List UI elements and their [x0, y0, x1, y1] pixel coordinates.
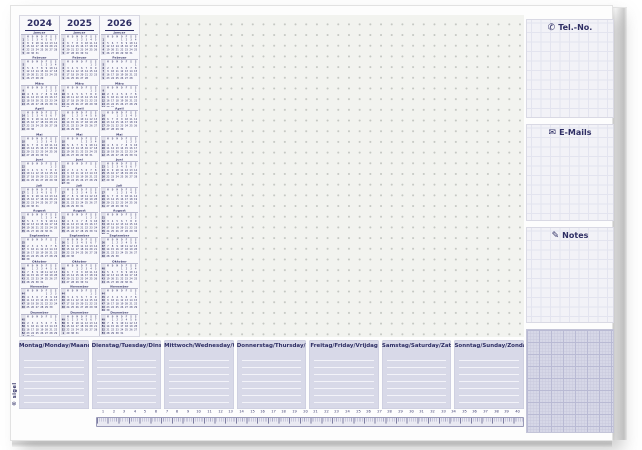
notes-panel: ✎ Notes — [526, 227, 614, 323]
mini-month-grid: MDMDFSS911023456781191011121314151216171… — [101, 86, 138, 107]
mini-month-inner: FebruarMDMDFSS51263456789710111213141516… — [61, 56, 98, 80]
mini-month-grid: MDMDFSS141234515678910111216131415161718… — [101, 111, 138, 131]
mini-month-inner: FebruarMDMDFSS51623456787910111213141581… — [101, 56, 138, 80]
ruler-number: 33 — [441, 410, 445, 413]
phone-icon: ✆ — [548, 23, 556, 33]
mini-month-grid: MDMDFSS401234564178910111213421415161718… — [21, 264, 58, 284]
mini-month: JuliMDMDFSS27123452867891011122913141516… — [101, 184, 138, 209]
ruler-number: 1 — [101, 410, 105, 413]
mini-month-inner: OktoberMDMDFSS40123441567891011421213141… — [101, 260, 138, 284]
day-cell: 31 — [93, 229, 98, 232]
year-label: 2024 — [25, 17, 54, 31]
ruler-number: 40 — [515, 410, 519, 413]
mini-month-grid: MDMDFSS141234561578910111213161415161718… — [61, 111, 98, 131]
planner-day-header: Sonntag/Sunday/Zondag — [454, 340, 524, 352]
mini-month: NovemberMDMDFSS4412453456789461011121314… — [61, 285, 98, 310]
ruler: 1234567891011121314151617181920212223242… — [96, 410, 524, 427]
day-cell — [93, 331, 98, 334]
planner-day-column: Donnerstag/Thursday/Donderdag — [237, 340, 307, 409]
mini-month: JuniMDMDFSS22123234567824910111213141525… — [61, 158, 98, 183]
mini-month-inner: JanuarMDMDFSS112345672891011121314315161… — [21, 31, 58, 55]
ruler-number: 18 — [282, 410, 286, 413]
day-cell — [133, 331, 138, 334]
mini-month-grid: MDMDFSS271234562878910111213291415161718… — [61, 187, 98, 207]
planner-day-header: Samstag/Saturday/Zaterdag — [382, 340, 452, 352]
mini-month-grid: MDMDFSS112345267891011123131415161718194… — [61, 35, 98, 55]
mini-month-grid: MDMDFSS361234567378910111213143815161718… — [61, 238, 98, 258]
mini-month-grid: MDMDFSS361234563778910111213381415161718… — [101, 238, 138, 258]
mini-month-grid: MDMDFSS441452345678469101112131415471617… — [101, 289, 138, 310]
mini-month-grid: MDMDFSS311234325678910113312131415161718… — [21, 213, 58, 233]
ruler-tick-strip — [96, 417, 524, 427]
mini-month-inner: JuliMDMDFSS27123452867891011122913141516… — [101, 184, 138, 208]
mini-month: MaiMDMDFSS181231945678910201112131415161… — [101, 133, 138, 158]
mini-month: SeptemberMDMDFSS361234567378910111213143… — [61, 234, 98, 259]
planner-day-header: Freitag/Friday/Vrijdag — [309, 340, 379, 352]
year-column: 2024JanuarMDMDFSS11234567289101112131431… — [20, 16, 59, 336]
writing-lines — [97, 354, 157, 406]
mini-month: AugustMDMDFSS311234325678910113312131415… — [21, 209, 58, 234]
mini-month: SeptemberMDMDFSS351362345678379101112131… — [21, 234, 58, 259]
mini-month: JanuarMDMDFSS112345672891011121314315161… — [21, 31, 58, 56]
ruler-number: 2 — [112, 410, 116, 413]
day-cell: 30 — [93, 306, 98, 309]
notes-panel-header: ✎ Notes — [527, 228, 613, 241]
mini-month-inner: MaiMDMDFSS181234195678910112012131415161… — [61, 133, 98, 157]
day-cell: 30 — [53, 179, 58, 182]
email-panel-header: ✉ E-Mails — [527, 125, 613, 138]
ruler-number: 5 — [144, 410, 148, 413]
mini-month-name: Juli — [21, 184, 58, 188]
ruler-number: 7 — [165, 410, 169, 413]
mini-month-grid: MDMDFSS441234545678910461112131415161747… — [21, 289, 58, 309]
desk-pad: 2024JanuarMDMDFSS11234567289101112131431… — [10, 5, 613, 441]
mini-month: AugustMDMDFSS311233245678910331112131415… — [61, 209, 98, 234]
mini-month-inner: MaiMDMDFSS181231945678910201112131415161… — [101, 133, 138, 157]
mini-month-grid: MDMDFSS912310456789101111121314151617121… — [21, 86, 58, 106]
mini-month-grid: MDMDFSS481492345678509101112131415511617… — [21, 315, 58, 336]
mini-month-grid: MDMDFSS516234567879101112131415816171819… — [101, 60, 138, 80]
ruler-number: 22 — [324, 410, 328, 413]
mini-month-inner: MärzMDMDFSS91210345678911101112131415161… — [61, 82, 98, 107]
envelope-icon: ✉ — [549, 128, 557, 138]
day-cell — [93, 204, 98, 207]
brand-logo: © sigel — [12, 382, 18, 406]
year-column: 2025JanuarMDMDFSS11234526789101112313141… — [59, 16, 99, 336]
ruler-number: 39 — [504, 410, 508, 413]
planner-day-column: Samstag/Saturday/Zaterdag — [382, 340, 452, 409]
ruler-number: 24 — [345, 410, 349, 413]
mini-month-inner: OktoberMDMDFSS40123456417891011121342141… — [21, 260, 58, 284]
ruler-number: 27 — [377, 410, 381, 413]
mini-month-grid: MDMDFSS512634567897101112131415168171819… — [61, 60, 98, 80]
mini-month-inner: JuliMDMDFSS27123456728891011121314291516… — [21, 184, 58, 208]
mini-month-grid: MDMDFSS271234528678910111229131415161718… — [101, 187, 138, 207]
mini-month: MärzMDMDFSS91210345678911101112131415161… — [61, 82, 98, 107]
mini-month-inner: NovemberMDMDFSS4412345456789104611121314… — [21, 285, 58, 309]
mini-month: JuniMDMDFSS23123456724891011121314251516… — [101, 158, 138, 183]
ruler-number: 26 — [366, 410, 370, 413]
day-cell — [93, 77, 98, 80]
pen-icon: ✎ — [552, 231, 560, 241]
mini-month-grid: MDMDFSS181231945678910201112131415161721… — [101, 137, 138, 157]
day-cell — [133, 51, 138, 54]
mini-month-grid: MDMDFSS401234541678910111242131415161718… — [61, 264, 98, 284]
mini-month-grid: MDMDFSS141234567158910111213141615161718… — [21, 111, 58, 131]
day-cell — [133, 255, 138, 258]
mini-month-grid: MDMDFSS221232345678249101112131415251617… — [61, 162, 98, 183]
ruler-numbers: 1234567891011121314151617181920212223242… — [96, 410, 524, 416]
ruler-number: 35 — [462, 410, 466, 413]
ruler-number: 3 — [122, 410, 126, 413]
mini-month-inner: AprilMDMDFSS1412345615789101112131614151… — [61, 107, 98, 131]
mini-month: MaiMDMDFSS181234195678910112012131415161… — [61, 133, 98, 158]
ruler-number: 6 — [154, 410, 158, 413]
ruler-number: 15 — [250, 410, 254, 413]
tri-year-calendar-panel: 2024JanuarMDMDFSS11234567289101112131431… — [19, 15, 140, 337]
mini-month-inner: AugustMDMDFSS311232345678933101112131415… — [101, 209, 138, 234]
tel-panel-header: ✆ Tel.-No. — [527, 20, 613, 33]
writing-lines — [169, 354, 229, 406]
mini-month-grid: MDMDFSS112342567891011312131415161718419… — [101, 35, 138, 55]
mini-month: DezemberMDMDFSS4912345650789101112135114… — [101, 311, 138, 336]
mini-month-inner: SeptemberMDMDFSS361234567378910111213143… — [61, 234, 98, 258]
mini-month: FebruarMDMDFSS51263456789710111213141516… — [61, 56, 98, 81]
ruler-number: 11 — [207, 410, 211, 413]
mini-month-name: Juli — [61, 184, 98, 188]
mini-month: SeptemberMDMDFSS361234563778910111213381… — [101, 234, 138, 259]
mini-month-inner: OktoberMDMDFSS40123454167891011124213141… — [61, 260, 98, 284]
mini-month: FebruarMDMDFSS51623456787910111213141581… — [101, 56, 138, 81]
mini-month-name: Juli — [101, 184, 138, 188]
graph-paper-panel — [526, 329, 614, 433]
ruler-number: 19 — [292, 410, 296, 413]
mini-month-grid: MDMDFSS311233245678910331112131415161734… — [61, 213, 98, 233]
mini-month: MärzMDMDFSS91231045678910111112131415161… — [21, 82, 58, 107]
mini-month: JuniMDMDFSS22122334567892410111213141516… — [21, 158, 58, 183]
mini-month-grid: MDMDFSS112345672891011121314315161718192… — [21, 35, 58, 55]
day-cell — [133, 280, 138, 283]
year-label: 2025 — [65, 17, 94, 31]
day-cell — [53, 51, 58, 54]
mini-month-inner: JuliMDMDFSS27123456287891011121329141516… — [61, 184, 98, 208]
planner-day-header: Dienstag/Tuesday/Dinsdag — [92, 340, 162, 352]
ruler-number: 32 — [430, 410, 434, 413]
ruler-number: 4 — [133, 410, 137, 413]
day-cell — [53, 229, 58, 232]
mini-month: NovemberMDMDFSS4414523456784691011121314… — [101, 285, 138, 310]
year-column: 2026JanuarMDMDFSS11234256789101131213141… — [99, 16, 139, 336]
mini-month-grid: MDMDFSS351362345678379101112131415381617… — [21, 238, 58, 259]
day-cell — [53, 77, 58, 80]
mini-month-inner: NovemberMDMDFSS4414523456784691011121314… — [101, 285, 138, 310]
mini-month: FebruarMDMDFSS51234656789101171213141516… — [21, 56, 58, 81]
mini-month-grid: MDMDFSS311232345678933101112131415163417… — [101, 213, 138, 234]
mini-month-inner: AugustMDMDFSS311234325678910113312131415… — [21, 209, 58, 233]
paper-stack-edge-right — [612, 7, 627, 440]
ruler-number: 37 — [483, 410, 487, 413]
mini-month: AprilMDMDFSS1412345671589101112131416151… — [21, 107, 58, 132]
day-cell — [53, 306, 58, 309]
mini-month: JanuarMDMDFSS112342567891011312131415161… — [101, 31, 138, 56]
day-cell — [133, 77, 138, 80]
mini-month: DezemberMDMDFSS4814923456785091011121314… — [21, 311, 58, 336]
mini-month-inner: FebruarMDMDFSS51234656789101171213141516… — [21, 56, 58, 80]
ruler-number: 12 — [218, 410, 222, 413]
mini-month-grid: MDMDFSS271234567288910111213142915161718… — [21, 187, 58, 207]
mini-month-grid: MDMDFSS512346567891011712131415161718819… — [21, 60, 58, 80]
tel-panel: ✆ Tel.-No. — [526, 19, 614, 118]
mini-month-inner: NovemberMDMDFSS4412453456789461011121314… — [61, 285, 98, 309]
mini-month: OktoberMDMDFSS40123456417891011121342141… — [21, 260, 58, 285]
mini-month-inner: MaiMDMDFSS181234519678910111220131415161… — [21, 133, 58, 157]
day-cell — [133, 204, 138, 207]
ruler-number: 36 — [473, 410, 477, 413]
planner-day-header: Montag/Monday/Maandag — [19, 340, 89, 352]
day-cell — [93, 255, 98, 258]
mini-month-grid: MDMDFSS491234565078910111213511415161718… — [101, 315, 138, 335]
ruler-number: 13 — [229, 410, 233, 413]
mini-month: JuliMDMDFSS27123456728891011121314291516… — [21, 184, 58, 209]
mini-month-inner: JanuarMDMDFSS112345267891011123131415161… — [61, 31, 98, 55]
ruler-number: 28 — [388, 410, 392, 413]
mini-month-inner: AprilMDMDFSS1412345156789101112161314151… — [101, 107, 138, 131]
mini-month: OktoberMDMDFSS40123454167891011124213141… — [61, 260, 98, 285]
day-cell: 31 — [133, 153, 138, 156]
mini-month-grid: MDMDFSS441245345678946101112131415164717… — [61, 289, 98, 309]
planner-day-column: Freitag/Friday/Vrijdag — [309, 340, 379, 409]
day-cell — [53, 334, 58, 336]
tel-panel-label: Tel.-No. — [558, 23, 592, 33]
mini-month-grid: MDMDFSS491234567508910111213145115161718… — [61, 315, 98, 335]
planner-day-column: Mittwoch/Wednesday/Woensdag — [164, 340, 234, 409]
ruler-number: 21 — [313, 410, 317, 413]
mini-month-grid: MDMDFSS912103456789111011121314151612171… — [61, 86, 98, 107]
ruler-number: 16 — [260, 410, 264, 413]
mini-month-inner: MärzMDMDFSS91231045678910111112131415161… — [21, 82, 58, 106]
mini-month-inner: AugustMDMDFSS311233245678910331112131415… — [61, 209, 98, 233]
mini-month: AprilMDMDFSS1412345615789101112131614151… — [61, 107, 98, 132]
day-cell — [93, 128, 98, 131]
writing-lines — [387, 354, 447, 406]
day-cell — [53, 128, 58, 131]
ruler-number: 8 — [175, 410, 179, 413]
email-panel: ✉ E-Mails — [526, 124, 614, 221]
ruler-number: 23 — [335, 410, 339, 413]
planner-day-header: Mittwoch/Wednesday/Woensdag — [164, 340, 234, 352]
day-cell: 31 — [53, 102, 58, 105]
year-label: 2026 — [105, 17, 134, 31]
ruler-number: 29 — [398, 410, 402, 413]
email-panel-label: E-Mails — [559, 128, 591, 138]
mini-month-inner: DezemberMDMDFSS4912345650789101112135114… — [101, 311, 138, 335]
mini-month-grid: MDMDFSS181234519678910111220131415161718… — [21, 137, 58, 157]
mini-month-inner: JuniMDMDFSS22122334567892410111213141516… — [21, 158, 58, 182]
day-cell — [53, 204, 58, 207]
ruler-number: 17 — [271, 410, 275, 413]
mini-month-inner: DezemberMDMDFSS4814923456785091011121314… — [21, 311, 58, 336]
day-cell — [93, 280, 98, 283]
mini-month-inner: JuniMDMDFSS23123456724891011121314251516… — [101, 158, 138, 182]
planner-day-column: Dienstag/Tuesday/Dinsdag — [92, 340, 162, 409]
mini-month-inner: DezemberMDMDFSS4912345675089101112131451… — [61, 311, 98, 335]
day-cell — [53, 280, 58, 283]
ruler-number: 34 — [451, 410, 455, 413]
mini-month-inner: MärzMDMDFSS91102345678119101112131415121… — [101, 82, 138, 107]
day-cell — [133, 179, 138, 182]
day-cell — [93, 51, 98, 54]
ruler-number: 9 — [186, 410, 190, 413]
mini-month-inner: SeptemberMDMDFSS351362345678379101112131… — [21, 234, 58, 259]
mini-month-grid: MDMDFSS231234567248910111213142515161718… — [101, 162, 138, 182]
mini-month: MaiMDMDFSS181234519678910111220131415161… — [21, 133, 58, 158]
ruler-number: 31 — [419, 410, 423, 413]
ruler-number: 20 — [303, 410, 307, 413]
mini-month-inner: JanuarMDMDFSS112342567891011312131415161… — [101, 31, 138, 55]
mini-month: MärzMDMDFSS91102345678119101112131415121… — [101, 82, 138, 107]
planner-day-header: Donnerstag/Thursday/Donderdag — [237, 340, 307, 352]
ruler-number: 10 — [197, 410, 201, 413]
weekly-planner: Montag/Monday/MaandagDienstag/Tuesday/Di… — [19, 340, 524, 409]
writing-lines — [242, 354, 302, 406]
ruler-number: 25 — [356, 410, 360, 413]
day-cell — [133, 128, 138, 131]
ruler-number: 30 — [409, 410, 413, 413]
day-cell — [53, 153, 58, 156]
ruler-number: 14 — [239, 410, 243, 413]
mini-month: AprilMDMDFSS1412345156789101112161314151… — [101, 107, 138, 132]
writing-lines — [459, 354, 519, 406]
mini-month-inner: AprilMDMDFSS1412345671589101112131416151… — [21, 107, 58, 131]
writing-lines — [314, 354, 374, 406]
day-cell — [93, 153, 98, 156]
mini-month: AugustMDMDFSS311232345678933101112131415… — [101, 209, 138, 234]
notes-panel-label: Notes — [562, 231, 588, 241]
mini-month-grid: MDMDFSS221223345678924101112131415162517… — [21, 162, 58, 182]
writing-lines — [24, 354, 84, 406]
mini-month-inner: JuniMDMDFSS22123234567824910111213141525… — [61, 158, 98, 183]
mini-month-grid: MDMDFSS401234415678910114212131415161718… — [101, 264, 138, 284]
mini-month: OktoberMDMDFSS40123441567891011421213141… — [101, 260, 138, 285]
mini-month: JanuarMDMDFSS112345267891011123131415161… — [61, 31, 98, 56]
planner-day-column: Montag/Monday/Maandag — [19, 340, 89, 409]
mini-month: NovemberMDMDFSS4412345456789104611121314… — [21, 285, 58, 310]
desk-scene: 2024JanuarMDMDFSS11234567289101112131431… — [0, 0, 642, 450]
mini-month-inner: SeptemberMDMDFSS361234563778910111213381… — [101, 234, 138, 258]
ruler-number: 38 — [494, 410, 498, 413]
mini-month-grid: MDMDFSS181234195678910112012131415161718… — [61, 137, 98, 157]
mini-month: DezemberMDMDFSS4912345675089101112131451… — [61, 311, 98, 336]
planner-day-column: Sonntag/Sunday/Zondag — [454, 340, 524, 409]
mini-month: JuliMDMDFSS27123456287891011121329141516… — [61, 184, 98, 209]
